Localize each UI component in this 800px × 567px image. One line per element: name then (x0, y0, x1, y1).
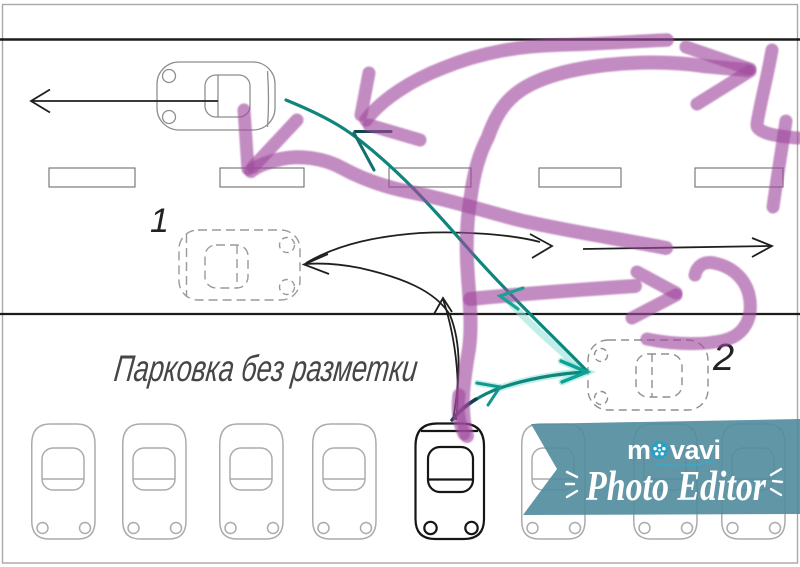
svg-text:Photo Editor: Photo Editor (585, 464, 766, 510)
svg-text:Парковка без разметки: Парковка без разметки (112, 347, 420, 389)
svg-text:1: 1 (150, 202, 169, 240)
svg-text:m: m (627, 435, 651, 465)
svg-text:vavi: vavi (670, 435, 721, 465)
